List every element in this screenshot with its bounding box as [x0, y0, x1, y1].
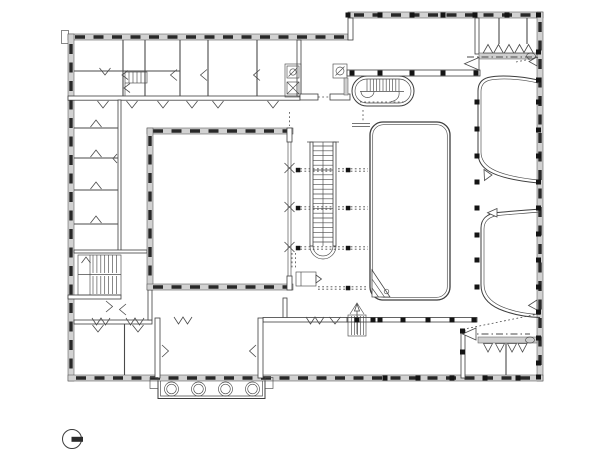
mini-stair [125, 72, 147, 96]
north-arrow-bar [72, 437, 84, 442]
lower-colonnade [263, 303, 477, 336]
corner-pier [62, 31, 69, 44]
cloakroom-counter-lower [478, 337, 537, 343]
coat-hooks-lower [484, 344, 528, 353]
dogleg-staircase [78, 255, 121, 295]
upper-fan-gallery [478, 76, 538, 183]
stage-corner-steps [372, 270, 390, 297]
direction-arrow-upper [465, 58, 480, 71]
lower-cloakroom [461, 314, 538, 378]
north-office-wing [68, 40, 301, 100]
lectern [296, 272, 322, 286]
lower-fan-gallery [481, 209, 540, 318]
west-room-wing [68, 100, 287, 375]
straight-staircase [307, 142, 339, 259]
north-arrow [63, 430, 84, 449]
cloakroom-counter [479, 53, 537, 59]
floor-plan [0, 0, 600, 466]
exterior-walls [62, 12, 544, 381]
corridor-link-walls [300, 64, 350, 100]
portico-columns [165, 382, 260, 396]
upper-foyer [347, 18, 538, 76]
oval-staircase [352, 76, 414, 106]
entrance-hall [155, 318, 263, 378]
door-swings [91, 68, 341, 357]
main-square-hall [147, 112, 296, 290]
coat-hooks-upper [483, 45, 533, 54]
stage-platform [352, 110, 450, 300]
folding-partition [285, 128, 295, 290]
partition-guide-lines [296, 169, 368, 289]
structural-columns [296, 13, 541, 381]
scanned-plan-page [0, 0, 600, 466]
